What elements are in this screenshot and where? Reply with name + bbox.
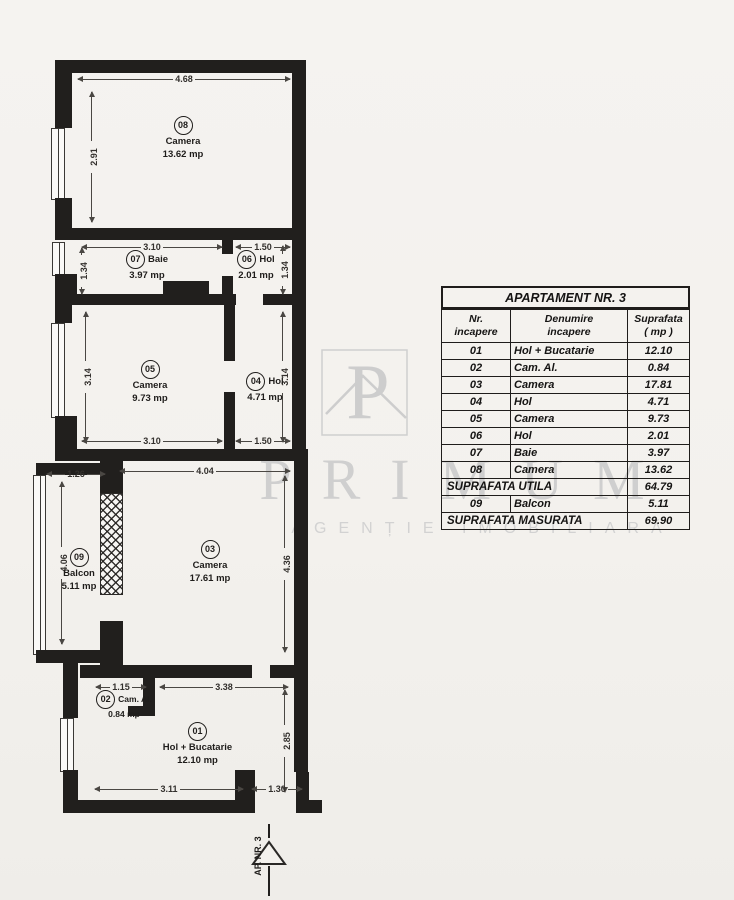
wall-segment — [294, 461, 308, 680]
primum-logo-icon: P — [316, 344, 413, 441]
table-row: 01 Hol + Bucatarie 12.10 — [442, 343, 690, 360]
subtotal-label: SUPRAFATA UTILA — [442, 479, 628, 496]
cell-area: 5.11 — [628, 496, 690, 513]
wall-segment — [55, 305, 72, 323]
table-row: 08 Camera 13.62 — [442, 462, 690, 479]
cell-nr: 07 — [442, 445, 511, 462]
cell-name: Camera — [511, 377, 628, 394]
window-segment — [33, 475, 46, 655]
table-row: 05 Camera 9.73 — [442, 411, 690, 428]
room-area: 2.01 mp — [238, 269, 273, 282]
room-area: 4.71 mp — [247, 391, 282, 404]
room-label-04: 04 Hol 4.71 mp — [236, 372, 294, 404]
cell-area: 3.97 — [628, 445, 690, 462]
room-label-07: 07 Baie 3.97 mp — [112, 250, 182, 282]
entrance-arrow-stem — [268, 866, 270, 896]
room-name: Hol + Bucatarie — [163, 741, 232, 754]
cell-nr: 06 — [442, 428, 511, 445]
room-number-badge: 09 — [70, 548, 89, 567]
room-name: Camera — [133, 379, 168, 392]
room-label-03: 03 Camera 17.61 mp — [175, 540, 245, 586]
dimension-room01-bottom-width: 3.11 — [95, 784, 243, 794]
room-label-05: 05 Camera 9.73 mp — [115, 360, 185, 406]
header-denumire: Denumireincapere — [511, 310, 628, 343]
room-number-badge: 03 — [201, 540, 220, 559]
apartment-entrance-label: AP. NR. 3 — [252, 826, 264, 886]
table-row: 03 Camera 17.81 — [442, 377, 690, 394]
cell-nr: 09 — [442, 496, 511, 513]
cell-area: 0.84 — [628, 360, 690, 377]
window-segment — [51, 323, 65, 418]
dimension-room05-width: 3.10 — [82, 436, 222, 446]
cell-name: Balcon — [511, 496, 628, 513]
room-label-01: 01 Hol + Bucatarie 12.10 mp — [150, 722, 245, 768]
window-segment — [51, 128, 65, 200]
room-label-09: 09 Balcon 5.11 mp — [47, 548, 111, 594]
header-nr: Nr.incapere — [442, 310, 511, 343]
scanned-floor-plan-page: P PRIMUM AGENȚIE IMOBILIARĂ 4.68 — [0, 0, 734, 900]
dimension-room08-height: 2.91 — [88, 92, 100, 222]
room-label-02: 02 Cam. Al. 0.84 mp — [93, 690, 155, 721]
table-subtotal-row: SUPRAFATA UTILA 64.79 — [442, 479, 690, 496]
table-row: 06 Hol 2.01 — [442, 428, 690, 445]
table-row: 07 Baie 3.97 — [442, 445, 690, 462]
room-area: 12.10 mp — [177, 754, 218, 767]
room-name: Baie — [148, 253, 168, 266]
cell-name: Hol — [511, 428, 628, 445]
room-area: 5.11 mp — [62, 580, 97, 593]
room-number-badge: 05 — [141, 360, 160, 379]
dimension-room05-height: 3.14 — [82, 312, 94, 442]
cell-area: 4.71 — [628, 394, 690, 411]
room-number-badge: 02 — [96, 690, 115, 709]
room-area: 13.62 mp — [163, 148, 204, 161]
dimension-room08-width: 4.68 — [78, 74, 290, 84]
wall-segment — [296, 800, 322, 813]
wall-segment — [270, 665, 294, 678]
wall-segment — [55, 449, 308, 461]
table-row: 04 Hol 4.71 — [442, 394, 690, 411]
subtotal-value: 64.79 — [628, 479, 690, 496]
cell-nr: 04 — [442, 394, 511, 411]
table-title: APARTAMENT NR. 3 — [441, 286, 690, 309]
wall-segment — [294, 680, 308, 772]
wall-segment — [55, 60, 72, 128]
areas-table-grid: Nr.incapere Denumireincapere Suprafata( … — [441, 309, 690, 530]
cell-nr: 02 — [442, 360, 511, 377]
room-number-badge: 07 — [126, 250, 145, 269]
wall-segment — [224, 305, 235, 361]
table-row: 09 Balcon 5.11 — [442, 496, 690, 513]
room-number-badge: 08 — [174, 116, 193, 135]
dimension-room03-width: 4.04 — [120, 466, 290, 476]
header-suprafata: Suprafata( mp ) — [628, 310, 690, 343]
cell-name: Camera — [511, 462, 628, 479]
wall-segment — [80, 665, 252, 678]
table-header-row: Nr.incapere Denumireincapere Suprafata( … — [442, 310, 690, 343]
table-total-row: SUPRAFATA MASURATA 69.90 — [442, 513, 690, 530]
room-name: Camera — [166, 135, 201, 148]
room-area: 3.97 mp — [129, 269, 164, 282]
room-number-badge: 01 — [188, 722, 207, 741]
wall-segment — [63, 658, 78, 718]
cell-area: 9.73 — [628, 411, 690, 428]
dimension-entrance-width: 1.30 — [252, 784, 302, 794]
room-name: Hol — [268, 375, 283, 388]
wall-segment — [70, 800, 237, 813]
areas-table: APARTAMENT NR. 3 Nr.incapere Denumireinc… — [441, 286, 690, 530]
wall-segment — [68, 294, 236, 305]
wall-segment — [292, 240, 306, 305]
cell-nr: 03 — [442, 377, 511, 394]
dimension-balcony-width: 1.26 — [47, 469, 105, 479]
table-row: 02 Cam. Al. 0.84 — [442, 360, 690, 377]
dimension-room03-height: 4.36 — [281, 476, 293, 652]
cell-name: Cam. Al. — [511, 360, 628, 377]
entrance-arrow-tick — [268, 824, 270, 838]
cell-nr: 05 — [442, 411, 511, 428]
wall-segment — [163, 281, 209, 294]
cell-name: Camera — [511, 411, 628, 428]
cell-area: 17.81 — [628, 377, 690, 394]
room-label-06: 06 Hol 2.01 mp — [227, 250, 285, 282]
room-area: 0.84 mp — [108, 709, 140, 721]
window-segment — [60, 718, 74, 772]
wall-segment — [224, 392, 235, 449]
wall-segment — [292, 60, 306, 240]
window-segment — [52, 242, 65, 276]
cell-name: Hol — [511, 394, 628, 411]
cell-name: Baie — [511, 445, 628, 462]
cell-area: 2.01 — [628, 428, 690, 445]
room-name: Camera — [193, 559, 228, 572]
room-label-08: 08 Camera 13.62 mp — [148, 116, 218, 162]
room-name: Cam. Al. — [118, 694, 152, 706]
wall-segment — [292, 305, 306, 449]
room-number-badge: 04 — [246, 372, 265, 391]
room-area: 9.73 mp — [132, 392, 167, 405]
cell-area: 12.10 — [628, 343, 690, 360]
room-area: 17.61 mp — [190, 572, 231, 585]
dimension-room04-width: 1.50 — [236, 436, 290, 446]
room-number-badge: 06 — [237, 250, 256, 269]
total-label: SUPRAFATA MASURATA — [442, 513, 628, 530]
dimension-room01-height: 2.85 — [281, 690, 293, 792]
room-name: Hol — [259, 253, 274, 266]
cell-area: 13.62 — [628, 462, 690, 479]
cell-nr: 01 — [442, 343, 511, 360]
dimension-room01-top-width: 3.38 — [160, 682, 288, 692]
cell-name: Hol + Bucatarie — [511, 343, 628, 360]
dimension-room07-height: 1.34 — [78, 248, 90, 294]
wall-segment — [55, 60, 305, 73]
room-name: Balcon — [63, 567, 95, 580]
wall-segment — [55, 228, 306, 240]
cell-nr: 08 — [442, 462, 511, 479]
svg-text:P: P — [346, 348, 389, 435]
total-value: 69.90 — [628, 513, 690, 530]
